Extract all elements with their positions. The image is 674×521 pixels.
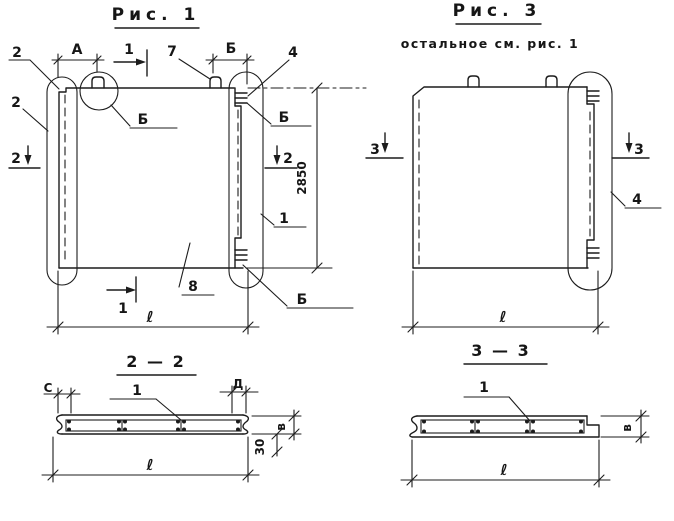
- sec22-reinforcement: [66, 420, 241, 431]
- section-2-2: 2 — 2 С: [42, 352, 301, 482]
- fig3-dim-length: ℓ: [402, 271, 609, 334]
- fig3-joint-bottom: [587, 240, 599, 268]
- svg-text:Б: Б: [279, 110, 290, 126]
- sec22-dim-30: 30: [253, 429, 282, 457]
- fig1-title: Рис. 1: [112, 5, 201, 25]
- svg-text:Б: Б: [138, 112, 149, 128]
- svg-text:1: 1: [118, 301, 128, 317]
- svg-text:2: 2: [11, 151, 21, 167]
- svg-text:Б: Б: [226, 41, 237, 57]
- fig1-dim-length: ℓ: [47, 271, 259, 334]
- sec33-title: 3 — 3: [471, 341, 530, 360]
- svg-text:1: 1: [479, 380, 489, 396]
- svg-text:С: С: [44, 381, 53, 395]
- svg-text:ℓ: ℓ: [498, 308, 506, 326]
- fig1-callout-2-top: 2: [9, 45, 59, 89]
- fig1-section-marker-2-right: 2: [265, 146, 297, 168]
- sec22-slab-outline: [57, 415, 249, 434]
- technical-drawing-canvas: Рис. 1: [0, 0, 674, 521]
- fig1-callout-B-circle: Б: [111, 105, 177, 128]
- sec33-dim-b: в: [601, 410, 649, 443]
- svg-text:Д: Д: [233, 377, 244, 391]
- fig1-callout-1: 1: [261, 211, 306, 227]
- blueprint-sheet: Рис. 1: [0, 0, 674, 521]
- fig1-lifting-loop-right: [210, 77, 221, 88]
- svg-text:1: 1: [132, 383, 142, 399]
- fig3-callout-4: 4: [611, 192, 661, 208]
- svg-text:3: 3: [634, 142, 644, 158]
- svg-text:8: 8: [188, 279, 198, 295]
- fig1-callout-2-side: 2: [11, 95, 48, 131]
- figure-1: Рис. 1: [9, 5, 366, 334]
- fig3-panel-outline: [413, 76, 599, 268]
- svg-text:в: в: [620, 424, 634, 432]
- svg-text:Б: Б: [297, 292, 308, 308]
- svg-text:ℓ: ℓ: [145, 456, 153, 474]
- sec33-slab-outline: [410, 416, 599, 437]
- section-3-3: 3 — 3 1: [401, 341, 649, 487]
- fig1-section-marker-1-top: 1: [114, 42, 147, 76]
- fig3-title: Рис. 3: [453, 1, 542, 21]
- fig1-lifting-loop-left: [92, 77, 104, 88]
- svg-text:4: 4: [632, 192, 642, 208]
- fig3-section-marker-3-left: 3: [366, 133, 403, 158]
- svg-text:2: 2: [11, 95, 21, 111]
- sec22-dim-D: Д: [220, 377, 258, 413]
- svg-text:2: 2: [12, 45, 22, 61]
- svg-text:2: 2: [283, 151, 293, 167]
- fig1-joint-bottom: [235, 238, 247, 268]
- svg-text:1: 1: [124, 42, 134, 58]
- svg-text:7: 7: [167, 44, 177, 60]
- svg-text:ℓ: ℓ: [499, 461, 507, 479]
- fig1-joint-top: [235, 88, 247, 238]
- fig3-section-marker-3-right: 3: [612, 133, 649, 158]
- sec33-callout-1: 1: [464, 380, 530, 421]
- fig1-callout-7: 7: [167, 44, 210, 79]
- fig1-callout-B-bottom-right: Б: [243, 265, 353, 308]
- svg-text:3: 3: [370, 142, 380, 158]
- sec22-title: 2 — 2: [126, 352, 185, 371]
- svg-text:1: 1: [279, 211, 289, 227]
- svg-text:2850: 2850: [295, 161, 309, 194]
- svg-text:30: 30: [253, 439, 267, 456]
- fig1-dim-height: 2850: [246, 83, 366, 273]
- sec22-dim-length: ℓ: [42, 437, 259, 482]
- figure-3: Рис. 3 остальное см. рис. 1: [366, 1, 661, 334]
- sec33-reinforcement: [421, 420, 584, 433]
- fig1-section-marker-2-left: 2: [9, 146, 40, 168]
- sec33-dim-length: ℓ: [401, 440, 610, 487]
- fig3-lifting-loop-right: [546, 76, 557, 87]
- fig3-subtitle: остальное см. рис. 1: [401, 36, 579, 51]
- fig1-callout-8: 8: [179, 243, 214, 295]
- sec33-rebar-dots: [422, 420, 583, 434]
- fig3-joint-top: [587, 87, 599, 240]
- svg-text:4: 4: [288, 45, 298, 61]
- svg-text:ℓ: ℓ: [145, 308, 153, 326]
- fig1-callout-B-top-right: Б: [247, 103, 311, 126]
- svg-text:А: А: [72, 42, 83, 58]
- sec22-rebar-dots: [67, 420, 240, 432]
- fig1-detail-oval-left: [47, 77, 77, 285]
- sec22-dim-C: С: [44, 381, 80, 413]
- fig1-section-marker-1-bottom: 1: [107, 277, 136, 317]
- fig3-lifting-loop-left: [468, 76, 479, 87]
